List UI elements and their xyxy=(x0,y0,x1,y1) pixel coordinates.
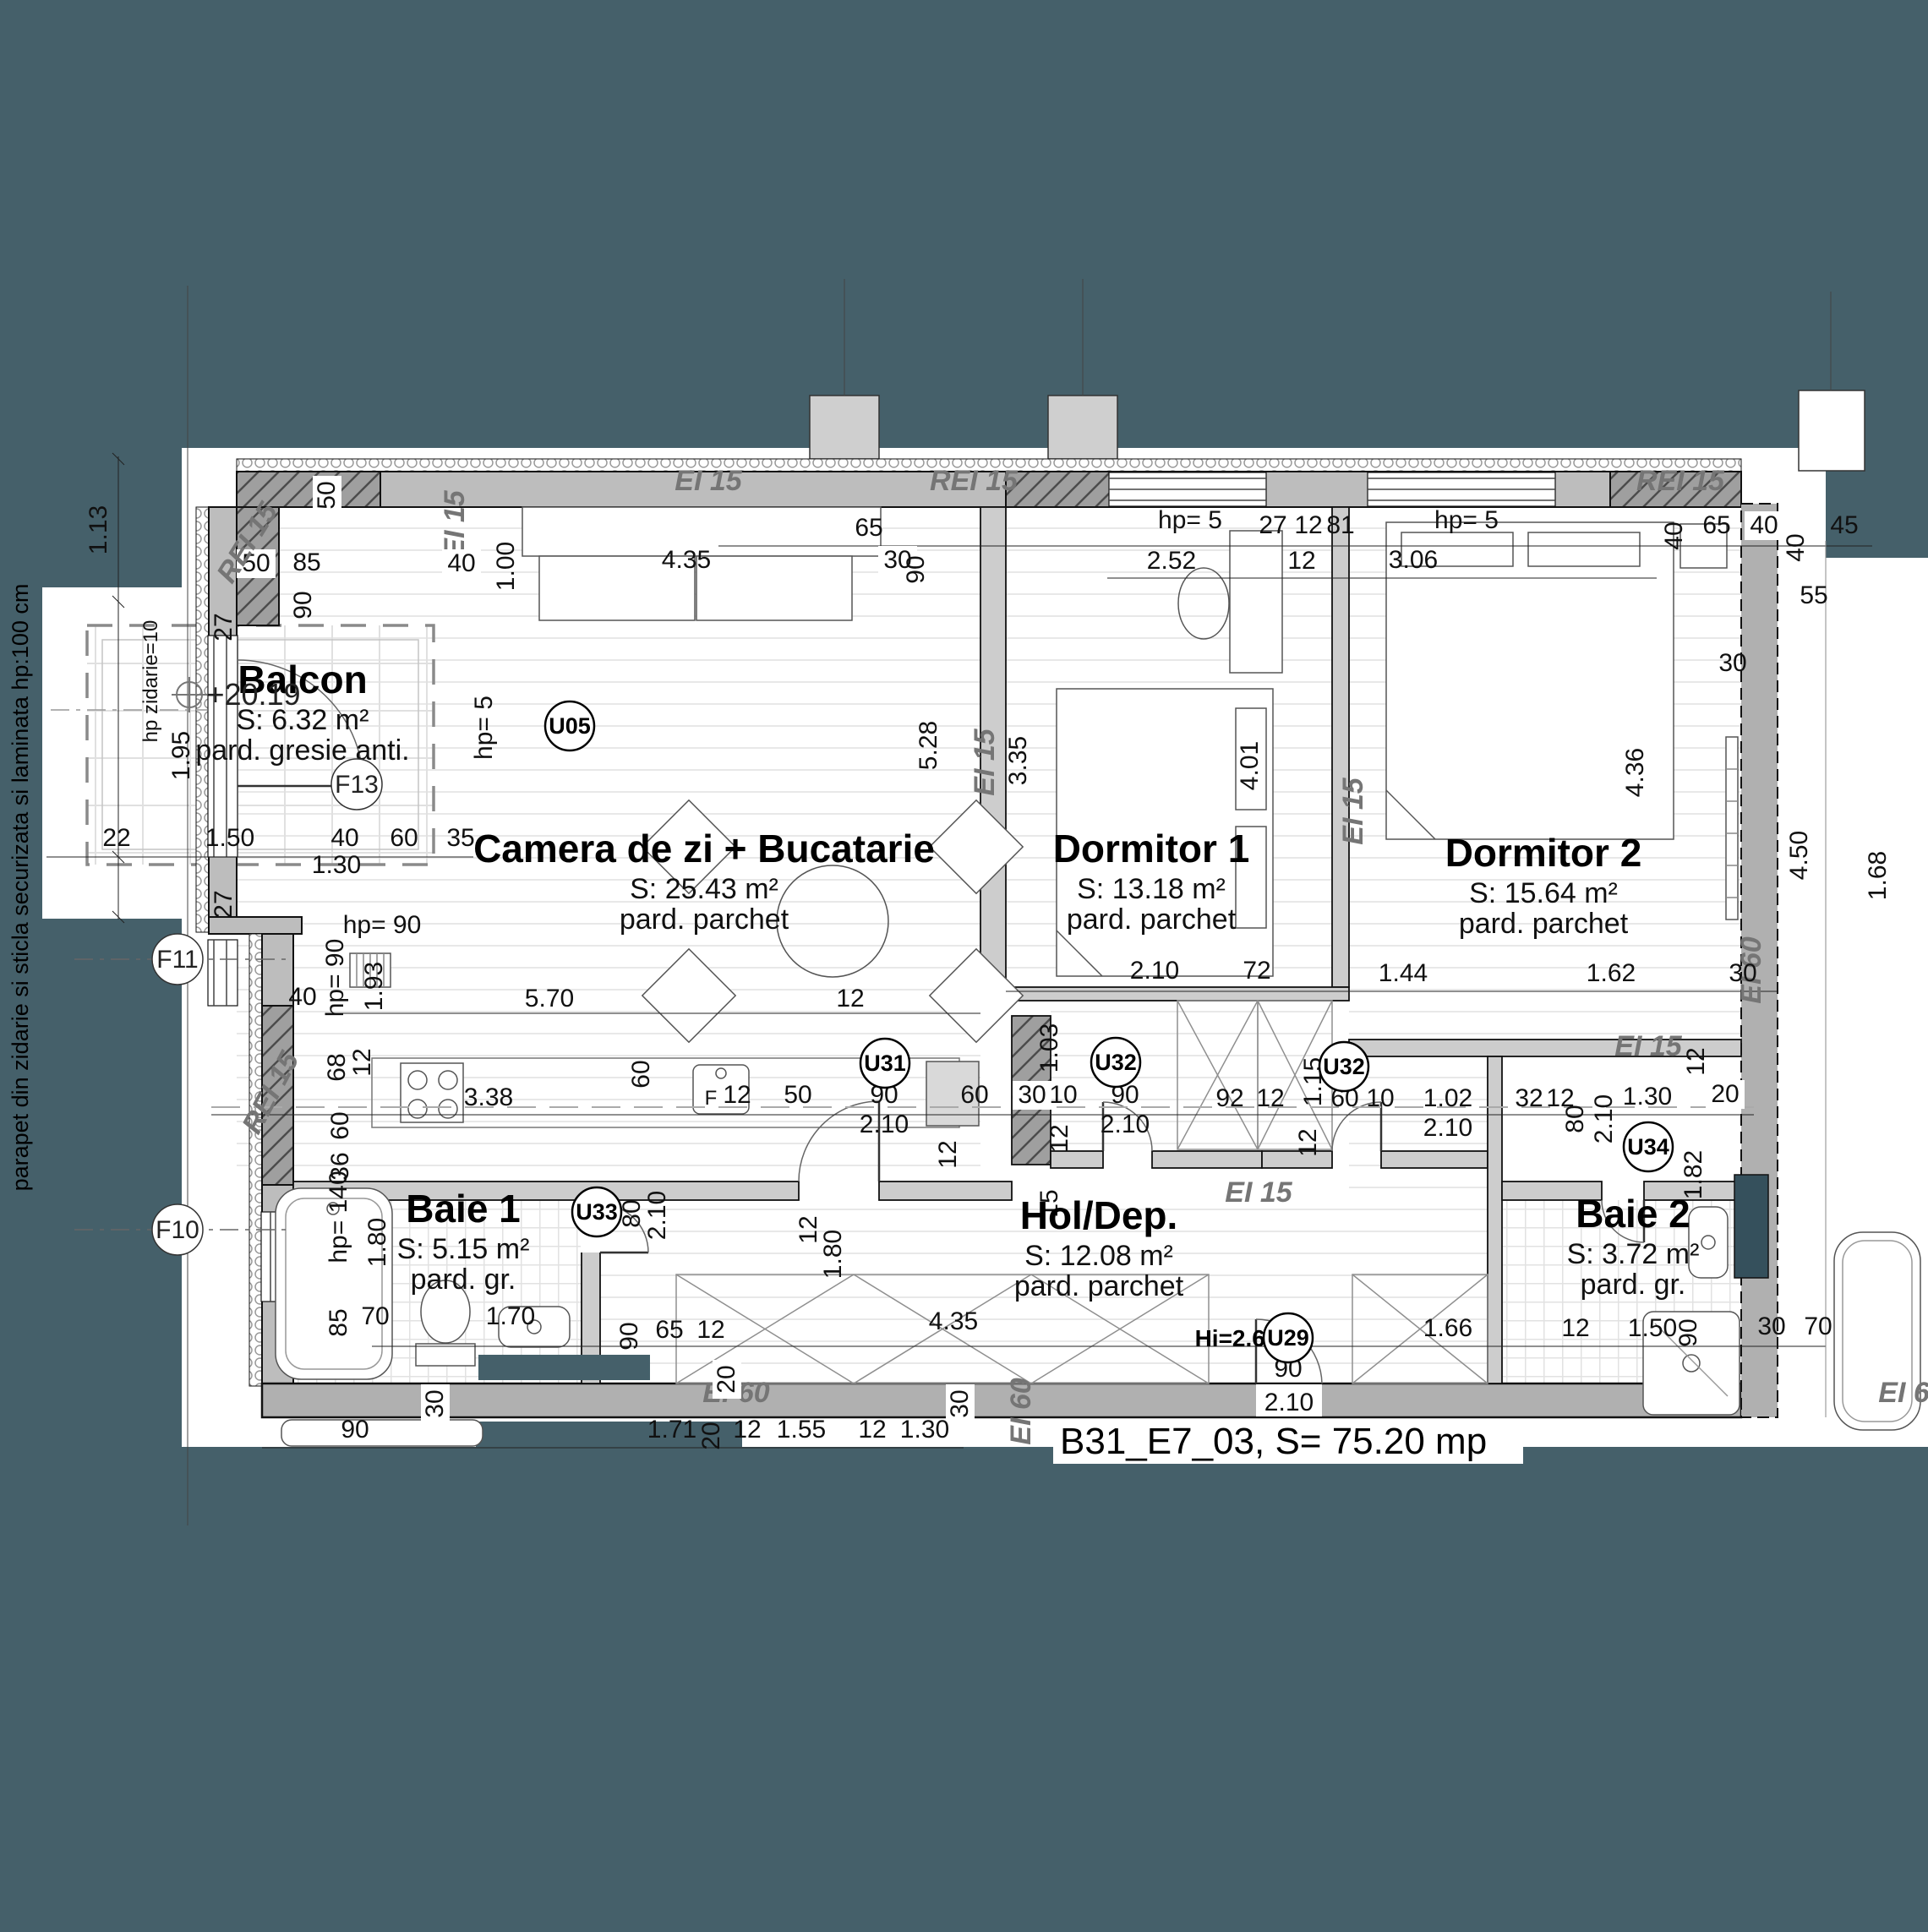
dim-label: 12 xyxy=(836,985,864,1012)
dim-label: 2.10 xyxy=(860,1111,909,1138)
dim-label: 1.13 xyxy=(85,505,112,554)
dim-label: 1.71 xyxy=(647,1416,696,1444)
dim-label: 2.10 xyxy=(1423,1114,1472,1142)
dim-label: 40 xyxy=(1750,511,1778,539)
dim-label: 2.10 xyxy=(1590,1094,1618,1143)
room-label-dormitor2: Dormitor 2S: 15.64 m²pard. parchet xyxy=(1445,831,1642,940)
dim-label: 68 xyxy=(323,1053,351,1081)
dim-label: 1.02 xyxy=(1423,1084,1472,1112)
door-tag-label: U29 xyxy=(1267,1325,1309,1351)
dim-label: 1.80 xyxy=(819,1230,847,1279)
dim-label: 27 xyxy=(210,613,238,641)
dim-label: 12 xyxy=(1256,1084,1284,1112)
wall-rating-label: EI 15 xyxy=(439,489,471,557)
room-floor-finish: pard. parchet xyxy=(1067,903,1237,936)
dim-label: 45 xyxy=(1830,511,1858,539)
axis-tag-label: F10 xyxy=(156,1216,199,1244)
room-area: S: 15.64 m² xyxy=(1469,877,1618,909)
dim-label: 1.50 xyxy=(205,824,254,852)
dim-label: 5.28 xyxy=(915,721,942,770)
dim-label: hp= 140 xyxy=(325,1171,352,1263)
dim-label: hp= 5 xyxy=(1158,506,1222,534)
dim-label: 92 xyxy=(1215,1084,1243,1112)
dim-label: 12 xyxy=(1294,511,1322,539)
wall-rating-label: EI 15 xyxy=(1337,777,1369,844)
dim-label: 2.10 xyxy=(1101,1111,1150,1138)
dim-label: 90 xyxy=(341,1416,369,1444)
dim-label: 4.35 xyxy=(662,546,711,574)
dim-label: 50 xyxy=(313,481,341,509)
dim-label: 10 xyxy=(1049,1081,1077,1109)
wall-rating-label: EI 60 xyxy=(1005,1378,1037,1444)
dim-label: 1.62 xyxy=(1587,959,1636,987)
floor-plan-page: 1.1327hp zidarie=101.9527221.504060351.3… xyxy=(0,0,1928,1928)
axis-tag-F10: F10 xyxy=(152,1204,203,1255)
room-label-baie1: Baie 1S: 5.15 m²pard. gr. xyxy=(397,1187,530,1296)
room-floor-finish: pard. parchet xyxy=(1459,908,1629,940)
dim-label: 4.36 xyxy=(1621,748,1649,797)
dim-label: 65 xyxy=(655,1316,683,1344)
dim-label: hp zidarie=10 xyxy=(139,620,162,743)
dim-label: 27 xyxy=(210,890,238,918)
door-tag-U31: U31 xyxy=(860,1039,909,1088)
dim-label: 40 xyxy=(288,983,316,1011)
axis-tag-F13: F13 xyxy=(331,759,382,810)
dim-label: 90 xyxy=(902,555,930,583)
dim-label: 12 xyxy=(858,1416,886,1444)
door-tag-label: U31 xyxy=(864,1051,906,1076)
door-tag-U32: U32 xyxy=(1091,1038,1140,1087)
dim-label: 40 xyxy=(1660,521,1688,549)
dim-label: 60 xyxy=(960,1081,988,1109)
dim-label: 12 xyxy=(348,1048,376,1076)
dim-label: 60 xyxy=(627,1060,655,1088)
dim-label: 30 xyxy=(421,1389,449,1417)
dim-label: 12 xyxy=(934,1140,962,1168)
wall-rating-label: EI 60 xyxy=(1878,1377,1928,1409)
dim-label: 40 xyxy=(330,824,358,852)
room-area: S: 3.72 m² xyxy=(1567,1238,1700,1270)
dim-label: 1.30 xyxy=(312,851,361,879)
dim-label: 2.52 xyxy=(1147,547,1196,575)
dim-label: 55 xyxy=(1800,581,1827,609)
dim-label: 30 xyxy=(946,1389,974,1417)
room-label-hol: Hol/Dep.S: 12.08 m²pard. parchet xyxy=(1014,1193,1184,1302)
dim-label: 1.30 xyxy=(900,1416,949,1444)
door-tag-label: U34 xyxy=(1627,1134,1669,1160)
dim-label: 1.66 xyxy=(1423,1314,1472,1342)
dim-label: 30 xyxy=(1018,1081,1046,1109)
dim-label: 27 xyxy=(1259,511,1286,539)
dim-label: 12 xyxy=(696,1316,724,1344)
dim-label: 4.50 xyxy=(1785,831,1813,880)
dim-label: 12 xyxy=(733,1416,761,1444)
dim-label: 12 xyxy=(1561,1314,1589,1342)
wall-rating-label: EI 15 xyxy=(1225,1176,1292,1209)
floor-plan-svg: 1.1327hp zidarie=101.9527221.504060351.3… xyxy=(0,0,1928,1928)
room-area: S: 25.43 m² xyxy=(630,873,778,905)
dim-label: 4.35 xyxy=(929,1307,978,1335)
room-area: S: 13.18 m² xyxy=(1077,873,1226,905)
dim-label: 3.35 xyxy=(1004,736,1032,785)
dim-label: F xyxy=(705,1087,718,1110)
door-tag-U34: U34 xyxy=(1624,1122,1673,1171)
dim-label: 65 xyxy=(1702,511,1730,539)
wall-rating-label: REI 15 xyxy=(930,465,1019,497)
parapet-note: parapet din zidarie si sticla securizata… xyxy=(8,584,33,1192)
dim-label: 20 xyxy=(1711,1080,1739,1108)
dim-label: 12 xyxy=(723,1081,751,1109)
dim-label: 30 xyxy=(1729,959,1756,987)
dim-label: 1.68 xyxy=(1864,851,1892,900)
dim-label: 3.06 xyxy=(1389,546,1438,574)
dim-label: 30 xyxy=(1757,1313,1785,1340)
room-area: S: 12.08 m² xyxy=(1024,1240,1173,1272)
door-tag-label: U32 xyxy=(1323,1054,1365,1079)
dim-label: 35 xyxy=(446,824,474,852)
dim-label: 60 xyxy=(390,824,418,852)
dim-label: 40 xyxy=(447,549,475,577)
room-name: Dormitor 1 xyxy=(1053,827,1250,870)
door-tag-label: U05 xyxy=(549,713,591,739)
dim-label: hp= 90 xyxy=(321,939,349,1018)
dim-label: 12 xyxy=(1287,547,1315,575)
dim-label: 65 xyxy=(855,514,882,542)
door-tag-label: U33 xyxy=(576,1199,618,1225)
wall-rating-label: EI 15 xyxy=(675,465,742,497)
room-name: Baie 1 xyxy=(406,1187,521,1231)
door-tag-U29: U29 xyxy=(1264,1313,1313,1362)
dim-label: 20 xyxy=(697,1422,725,1449)
dim-label: 1.70 xyxy=(486,1302,535,1330)
room-name: Hol/Dep. xyxy=(1020,1193,1178,1237)
dim-label: 1.55 xyxy=(777,1416,826,1444)
dim-label: 50 xyxy=(784,1081,811,1109)
dim-label: 85 xyxy=(292,548,320,576)
dim-label: 90 xyxy=(1674,1318,1702,1346)
dim-label: 30 xyxy=(1718,649,1746,677)
room-floor-finish: pard. gresie anti. xyxy=(195,734,409,767)
shaft-duct xyxy=(1734,1175,1768,1278)
dim-label: 20 xyxy=(713,1365,740,1393)
dim-label: 4.01 xyxy=(1236,741,1264,790)
door-tag-label: U32 xyxy=(1095,1050,1137,1075)
dim-label: 12 xyxy=(1294,1128,1322,1156)
dim-label: 32 xyxy=(1515,1084,1543,1112)
wall-rating-label: EI 15 xyxy=(969,728,1001,795)
dim-label: 1.00 xyxy=(492,542,520,591)
dim-label: 2.10 xyxy=(1130,957,1179,985)
door-tag-U33: U33 xyxy=(572,1187,621,1236)
room-name: Baie 2 xyxy=(1576,1192,1690,1236)
dim-label: 1.95 xyxy=(167,731,195,780)
dim-label: 10 xyxy=(1366,1084,1394,1112)
room-floor-finish: pard. gr. xyxy=(411,1263,516,1296)
dim-label: 80 xyxy=(1561,1105,1589,1132)
dim-label: 3.38 xyxy=(464,1083,513,1111)
dim-label: 2.10 xyxy=(643,1191,671,1240)
dim-label: hp= 5 xyxy=(1434,506,1499,534)
axis-tag-label: F11 xyxy=(156,946,198,974)
dim-label: 90 xyxy=(615,1322,643,1350)
dim-label: 12 xyxy=(1682,1047,1710,1075)
dim-label: 2.10 xyxy=(1264,1389,1314,1416)
dim-label: 90 xyxy=(289,591,317,619)
dim-label: 1.03 xyxy=(1035,1023,1063,1072)
door-tag-U32: U32 xyxy=(1319,1042,1368,1091)
dim-label: 60 xyxy=(326,1111,354,1139)
dim-label: 1.44 xyxy=(1379,959,1428,987)
dim-label: hp= 90 xyxy=(343,911,422,939)
dim-label: 72 xyxy=(1243,957,1270,985)
dim-label: 12 xyxy=(1046,1124,1073,1152)
dim-label: 1.80 xyxy=(363,1218,391,1267)
dim-label: 1.93 xyxy=(360,962,388,1011)
dim-label: 5.70 xyxy=(525,985,574,1012)
door-tag-U05: U05 xyxy=(545,701,594,750)
level-value: +20.19 xyxy=(206,677,300,712)
dim-label: 1.50 xyxy=(1628,1314,1677,1342)
dim-label: hp= 5 xyxy=(470,696,498,760)
dim-label: 81 xyxy=(1326,511,1354,539)
room-area: S: 5.15 m² xyxy=(397,1233,530,1265)
dim-label: 22 xyxy=(102,824,130,852)
room-label-baie2: Baie 2S: 3.72 m²pard. gr. xyxy=(1567,1192,1700,1301)
room-name: Camera de zi + Bucatarie xyxy=(473,827,935,870)
dim-label: 85 xyxy=(325,1308,352,1336)
dim-label: 1.30 xyxy=(1623,1083,1672,1111)
plan-title: B31_E7_03, S= 75.20 mp xyxy=(1060,1421,1487,1462)
wall-rating-label: EI 15 xyxy=(1614,1030,1682,1062)
room-name: Dormitor 2 xyxy=(1445,831,1642,875)
room-label-dormitor1: Dormitor 1S: 13.18 m²pard. parchet xyxy=(1053,827,1250,936)
room-floor-finish: pard. gr. xyxy=(1581,1269,1686,1301)
dim-label: 70 xyxy=(1804,1313,1832,1340)
dim-label: 70 xyxy=(361,1302,389,1330)
wall-rating-label: REI 15 xyxy=(1636,465,1725,497)
axis-tag-label: F13 xyxy=(335,771,379,799)
dim-label: 40 xyxy=(1782,533,1810,561)
room-floor-finish: pard. parchet xyxy=(620,903,789,936)
room-floor-finish: pard. parchet xyxy=(1014,1270,1184,1302)
axis-tag-F11: F11 xyxy=(152,934,203,985)
